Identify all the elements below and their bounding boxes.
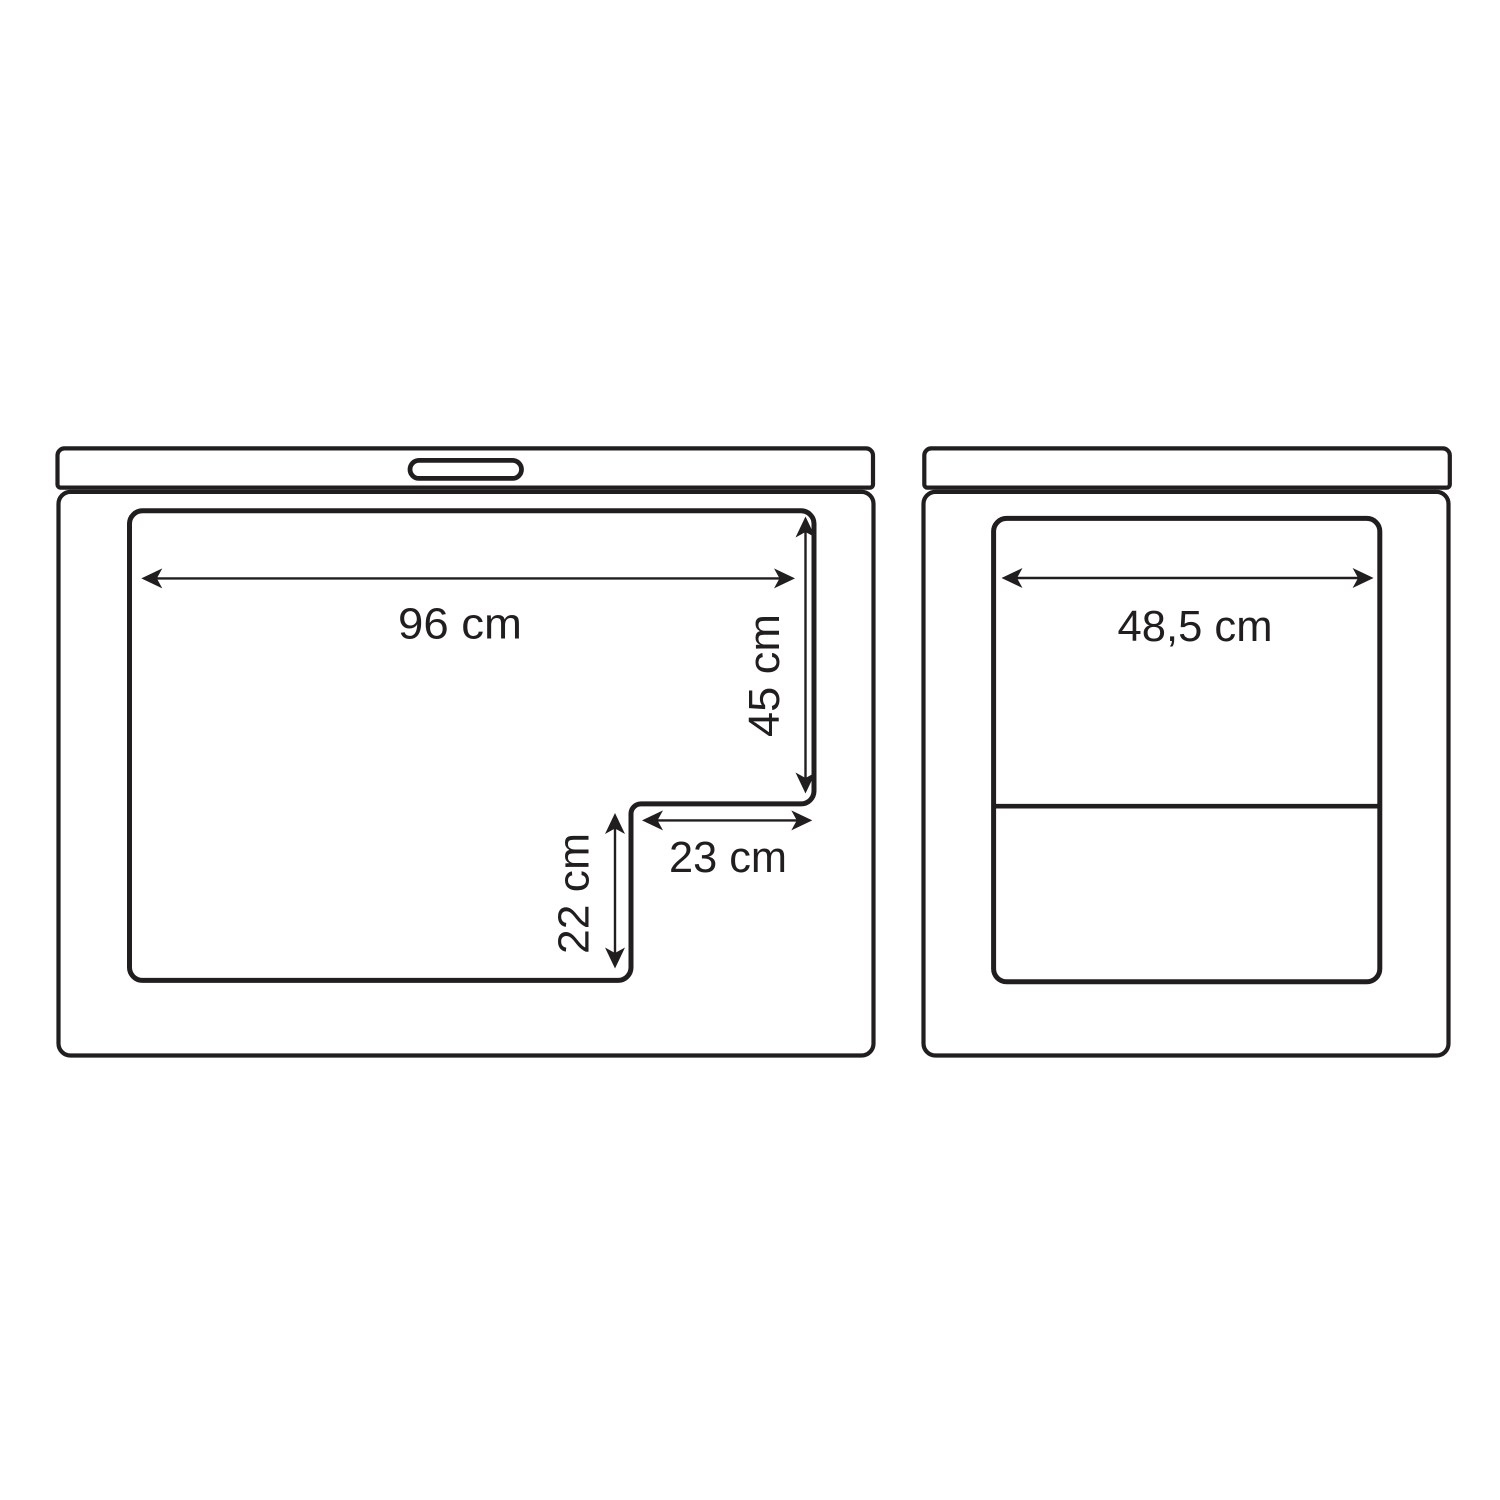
svg-text:48,5 cm: 48,5 cm (1118, 602, 1273, 651)
svg-text:45 cm: 45 cm (740, 614, 789, 737)
svg-text:96 cm: 96 cm (398, 600, 522, 649)
svg-text:22 cm: 22 cm (550, 833, 599, 954)
svg-text:23 cm: 23 cm (669, 833, 787, 882)
